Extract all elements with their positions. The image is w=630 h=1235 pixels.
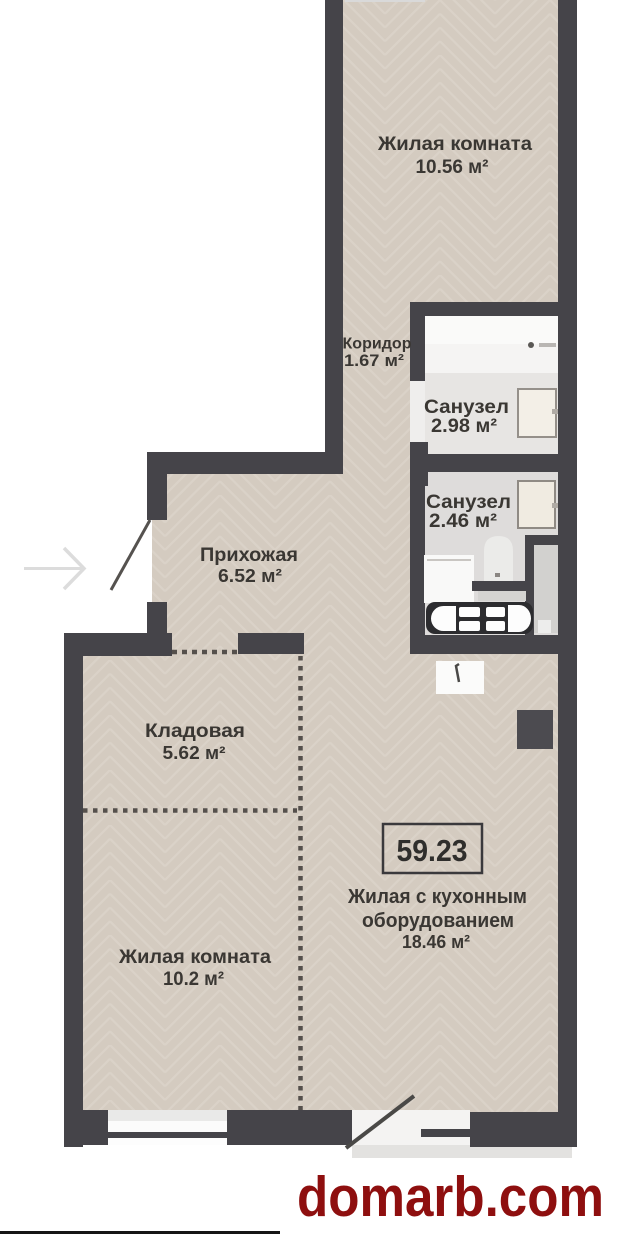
svg-text:Кладовая: Кладовая: [145, 720, 245, 742]
svg-text:Жилая с кухонным: Жилая с кухонным: [347, 885, 527, 908]
svg-text:59.23: 59.23: [397, 833, 468, 868]
svg-text:2.98 м²: 2.98 м²: [431, 415, 498, 437]
svg-text:Жилая комната: Жилая комната: [377, 133, 532, 155]
svg-text:18.46 м²: 18.46 м²: [402, 931, 470, 952]
svg-text:10.2 м²: 10.2 м²: [163, 968, 224, 990]
svg-text:1.67 м²: 1.67 м²: [344, 352, 405, 370]
svg-text:10.56 м²: 10.56 м²: [416, 156, 489, 178]
svg-text:Прихожая: Прихожая: [200, 544, 298, 566]
svg-text:6.52 м²: 6.52 м²: [218, 565, 282, 586]
svg-text:5.62 м²: 5.62 м²: [163, 743, 226, 763]
svg-text:domarb.com: domarb.com: [297, 1165, 604, 1229]
svg-text:оборудованием: оборудованием: [362, 909, 514, 932]
svg-text:Жилая комната: Жилая комната: [118, 946, 271, 968]
svg-text:2.46 м²: 2.46 м²: [429, 510, 498, 532]
svg-text:Коридор: Коридор: [343, 336, 412, 353]
